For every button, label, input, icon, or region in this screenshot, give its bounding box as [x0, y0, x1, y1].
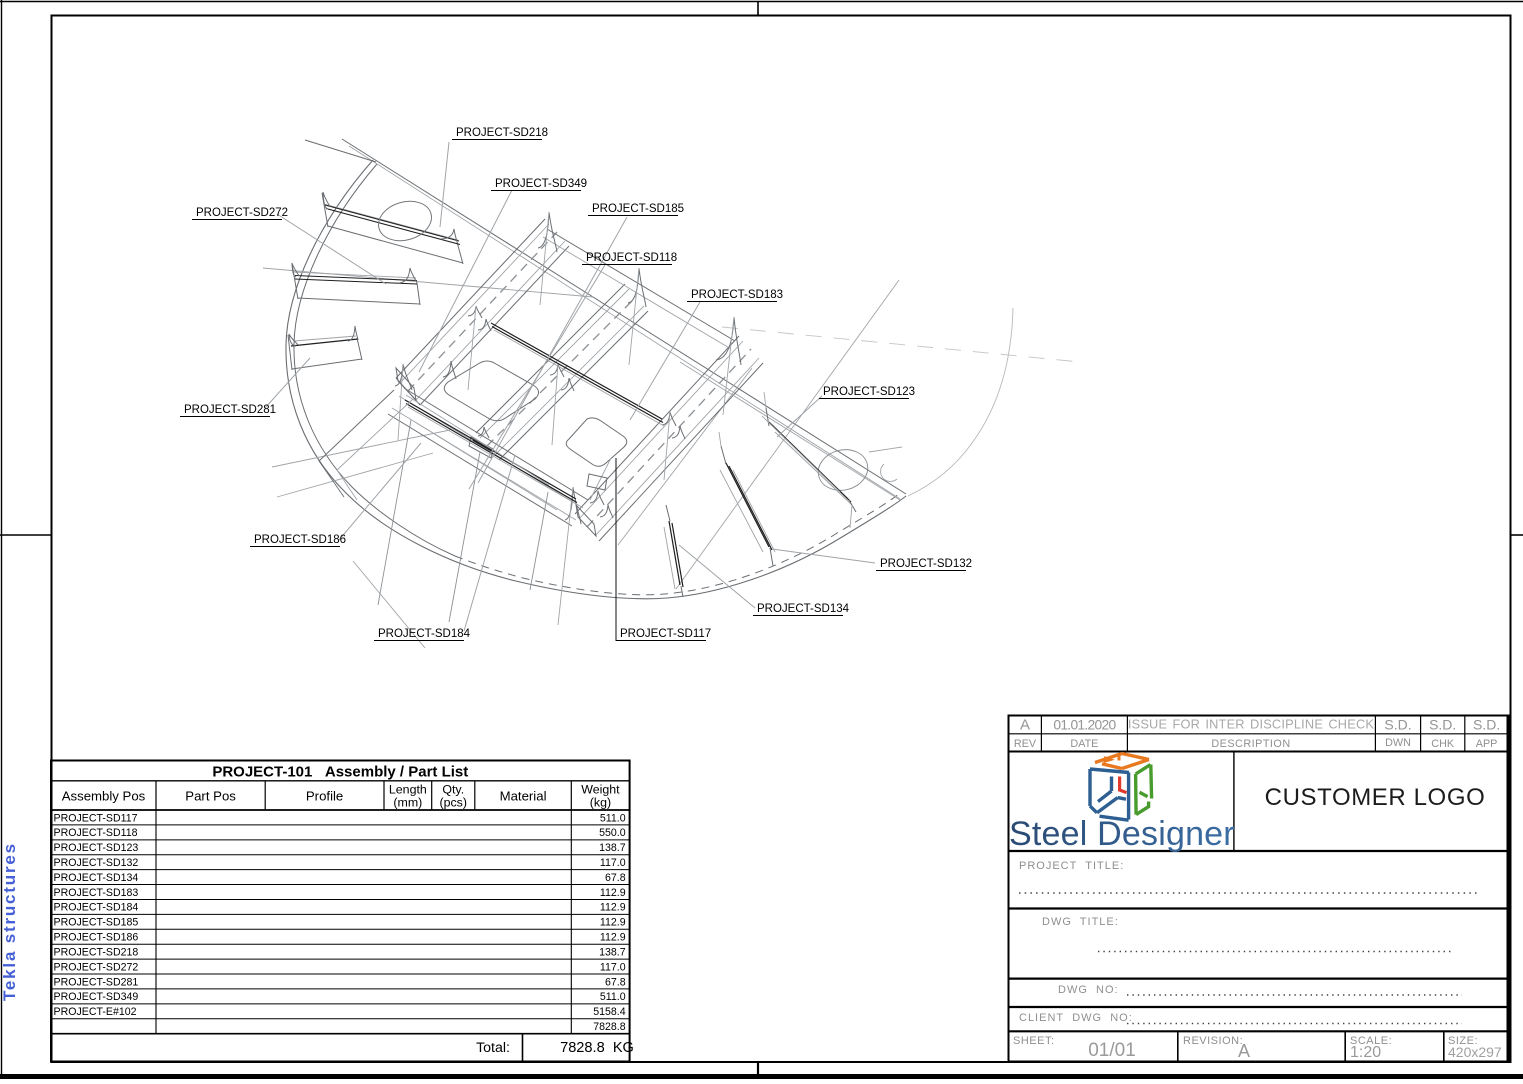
svg-text:APP: APP	[1476, 738, 1498, 750]
svg-text:7828.8: 7828.8	[593, 1021, 626, 1033]
svg-text:PROJECT-SD349: PROJECT-SD349	[54, 991, 139, 1003]
svg-text:(kg): (kg)	[590, 796, 611, 810]
svg-text:67.8: 67.8	[605, 976, 626, 988]
svg-text:PROJECT-101 Assembly / Part: PROJECT-101 Assembly / Part List	[212, 764, 468, 781]
svg-text:112.9: 112.9	[600, 932, 626, 944]
svg-text:112.9: 112.9	[600, 917, 626, 929]
svg-text:S.D.: S.D.	[1473, 717, 1500, 733]
svg-text:PROJECT-E#102: PROJECT-E#102	[54, 1006, 137, 1018]
svg-text:A: A	[1020, 717, 1030, 734]
svg-text:PROJECT TITLE:: PROJECT TITLE:	[1019, 860, 1124, 872]
svg-text:PROJECT-SD117: PROJECT-SD117	[54, 812, 138, 824]
svg-text:PROJECT-SD132: PROJECT-SD132	[880, 558, 972, 570]
svg-text:511.0: 511.0	[600, 812, 626, 824]
svg-text:Total:: Total:	[476, 1040, 510, 1056]
svg-text:SHEET:: SHEET:	[1013, 1035, 1055, 1047]
svg-text:DATE: DATE	[1070, 738, 1098, 750]
svg-text:(mm): (mm)	[393, 796, 422, 810]
svg-text:PROJECT-SD183: PROJECT-SD183	[54, 887, 139, 899]
svg-text:PROJECT-SD186: PROJECT-SD186	[54, 932, 139, 944]
svg-text:REVISION:: REVISION:	[1183, 1035, 1243, 1047]
svg-text:PROJECT-SD184: PROJECT-SD184	[378, 628, 471, 640]
svg-text:S.D.: S.D.	[1384, 717, 1411, 733]
svg-text:PROJECT-SD184: PROJECT-SD184	[54, 902, 139, 914]
svg-text:DWG TITLE:: DWG TITLE:	[1042, 916, 1119, 928]
svg-text:PROJECT-SD132: PROJECT-SD132	[54, 857, 139, 869]
svg-text:7828.8 KG: 7828.8 KG	[560, 1040, 634, 1056]
svg-text:PROJECT-SD123: PROJECT-SD123	[823, 386, 915, 398]
svg-text:Qty.: Qty.	[442, 783, 464, 797]
svg-text:Tekla structures: Tekla structures	[0, 842, 19, 1001]
svg-text:Steel Designer: Steel Designer	[1009, 815, 1235, 853]
svg-text:Assembly Pos: Assembly Pos	[62, 789, 146, 804]
svg-text:DWN: DWN	[1385, 737, 1411, 749]
svg-text:112.9: 112.9	[600, 902, 626, 914]
svg-text:PROJECT-SD186: PROJECT-SD186	[254, 534, 346, 546]
svg-text:PROJECT-SD281: PROJECT-SD281	[184, 404, 276, 416]
svg-text:A: A	[1238, 1041, 1250, 1061]
svg-text:Weight: Weight	[581, 783, 620, 797]
svg-text:117.0: 117.0	[600, 961, 626, 973]
svg-text:PROJECT-SD218: PROJECT-SD218	[456, 127, 548, 139]
svg-text:PROJECT-SD118: PROJECT-SD118	[586, 252, 677, 264]
svg-text:ISSUE FOR INTER DISCIPLINE CHE: ISSUE FOR INTER DISCIPLINE CHECK	[1128, 717, 1375, 732]
svg-text:511.0: 511.0	[600, 991, 626, 1003]
svg-text:PROJECT-SD134: PROJECT-SD134	[54, 872, 139, 884]
svg-text:PROJECT-SD123: PROJECT-SD123	[54, 842, 139, 854]
svg-text:PROJECT-SD185: PROJECT-SD185	[592, 203, 684, 215]
svg-text:PROJECT-SD272: PROJECT-SD272	[54, 961, 139, 973]
svg-text:CLIENT DWG NO:: CLIENT DWG NO:	[1019, 1012, 1133, 1024]
svg-text:117.0: 117.0	[600, 857, 626, 869]
svg-text:PROJECT-SD281: PROJECT-SD281	[54, 976, 139, 988]
svg-text:PROJECT-SD218: PROJECT-SD218	[54, 946, 139, 958]
svg-text:01.01.2020: 01.01.2020	[1053, 718, 1116, 733]
svg-text:Material: Material	[500, 789, 547, 804]
svg-text:CHK: CHK	[1431, 738, 1455, 750]
svg-text:DESCRIPTION: DESCRIPTION	[1211, 738, 1290, 750]
svg-text:Length: Length	[389, 783, 427, 797]
svg-text:PROJECT-SD134: PROJECT-SD134	[757, 603, 850, 615]
svg-text:550.0: 550.0	[599, 827, 626, 839]
svg-text:138.7: 138.7	[599, 946, 626, 958]
svg-text:112.9: 112.9	[600, 887, 626, 899]
svg-text:Part Pos: Part Pos	[185, 789, 236, 804]
svg-text:1:20: 1:20	[1350, 1044, 1381, 1061]
svg-text:S.D.: S.D.	[1429, 717, 1456, 733]
svg-text:PROJECT-SD183: PROJECT-SD183	[691, 289, 783, 301]
svg-text:5158.4: 5158.4	[593, 1006, 626, 1018]
svg-text:CUSTOMER LOGO: CUSTOMER LOGO	[1265, 784, 1486, 811]
svg-text:(pcs): (pcs)	[439, 796, 467, 810]
svg-text:DWG NO:: DWG NO:	[1058, 984, 1119, 996]
svg-text:PROJECT-SD118: PROJECT-SD118	[54, 827, 138, 839]
svg-text:420x297: 420x297	[1448, 1044, 1502, 1060]
svg-text:01/01: 01/01	[1088, 1040, 1136, 1061]
svg-text:PROJECT-SD185: PROJECT-SD185	[54, 917, 139, 929]
svg-text:PROJECT-SD272: PROJECT-SD272	[196, 207, 288, 219]
svg-text:REV: REV	[1014, 738, 1037, 750]
svg-text:67.8: 67.8	[605, 872, 626, 884]
svg-text:Profile: Profile	[306, 789, 343, 804]
svg-text:138.7: 138.7	[599, 842, 626, 854]
svg-text:PROJECT-SD349: PROJECT-SD349	[495, 178, 587, 190]
svg-text:PROJECT-SD117: PROJECT-SD117	[620, 628, 711, 640]
